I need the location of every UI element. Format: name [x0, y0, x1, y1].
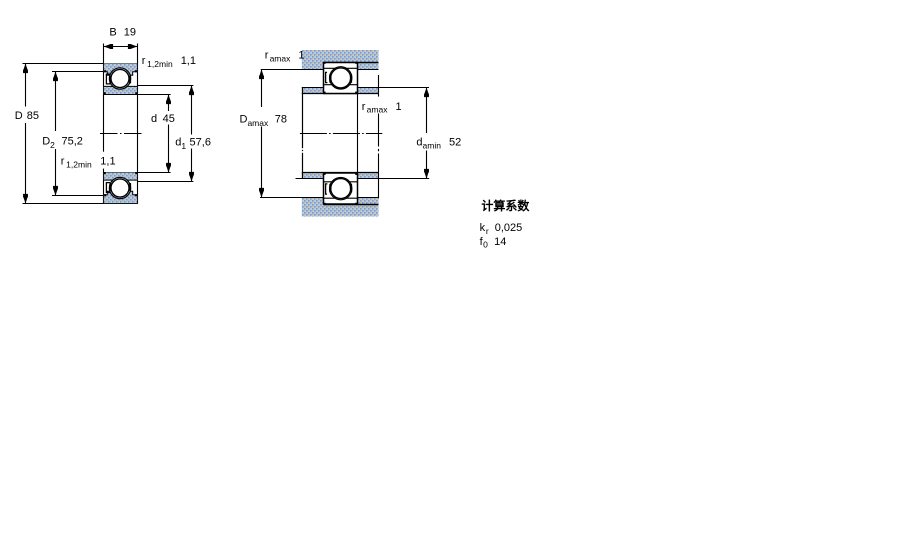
svg-text:r1,2min1,1: r1,2min1,1 — [142, 55, 196, 69]
svg-text:kr0,025: kr0,025 — [480, 222, 523, 236]
svg-text:ramax1: ramax1 — [265, 50, 305, 64]
svg-text:计算系数: 计算系数 — [481, 198, 530, 213]
svg-text:Damax78: Damax78 — [240, 114, 288, 128]
svg-text:d45: d45 — [151, 113, 175, 125]
svg-text:ramax1: ramax1 — [362, 101, 402, 115]
svg-text:B19: B19 — [109, 27, 136, 39]
svg-text:f014: f014 — [480, 236, 507, 250]
svg-text:r1,2min1,1: r1,2min1,1 — [61, 156, 116, 170]
svg-text:d157,6: d157,6 — [175, 137, 211, 151]
svg-text:damin52: damin52 — [416, 136, 461, 150]
svg-text:D275,2: D275,2 — [42, 136, 83, 150]
svg-text:D85: D85 — [15, 110, 39, 122]
